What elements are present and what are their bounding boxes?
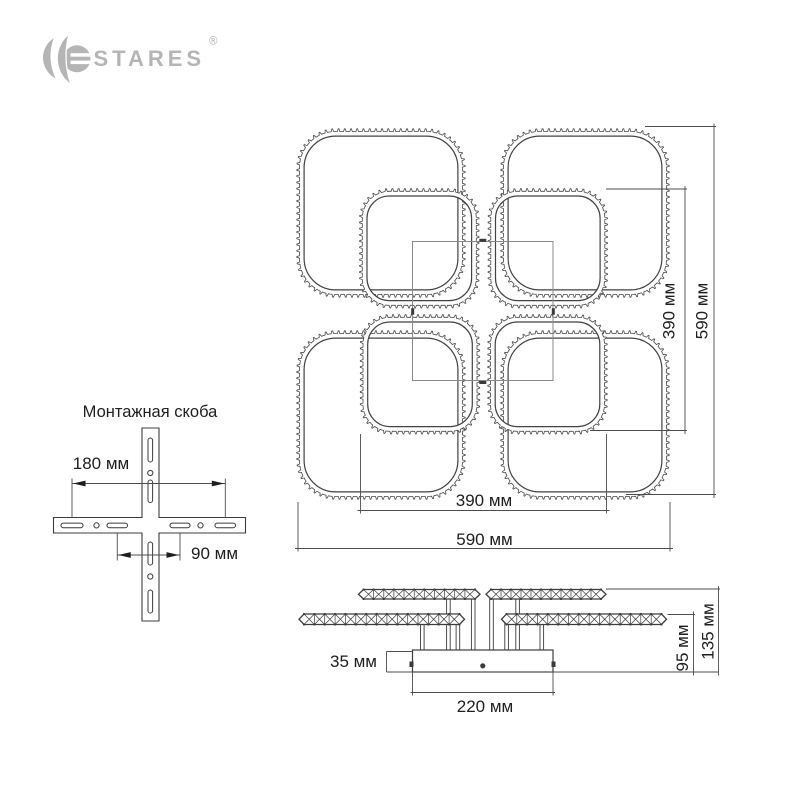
- svg-text:Монтажная скоба: Монтажная скоба: [83, 403, 219, 421]
- svg-text:135 мм: 135 мм: [699, 603, 718, 659]
- svg-text:90 мм: 90 мм: [191, 544, 238, 563]
- svg-text:STARES: STARES: [94, 46, 206, 71]
- svg-text:590 мм: 590 мм: [456, 530, 512, 549]
- svg-text:590 мм: 590 мм: [693, 283, 712, 339]
- svg-text:390 мм: 390 мм: [660, 283, 679, 339]
- svg-text:®: ®: [209, 36, 218, 48]
- svg-text:35 мм: 35 мм: [330, 652, 377, 671]
- svg-text:95 мм: 95 мм: [673, 624, 692, 671]
- svg-text:390 мм: 390 мм: [456, 491, 512, 510]
- svg-text:220 мм: 220 мм: [457, 697, 513, 716]
- svg-text:180 мм: 180 мм: [73, 454, 129, 473]
